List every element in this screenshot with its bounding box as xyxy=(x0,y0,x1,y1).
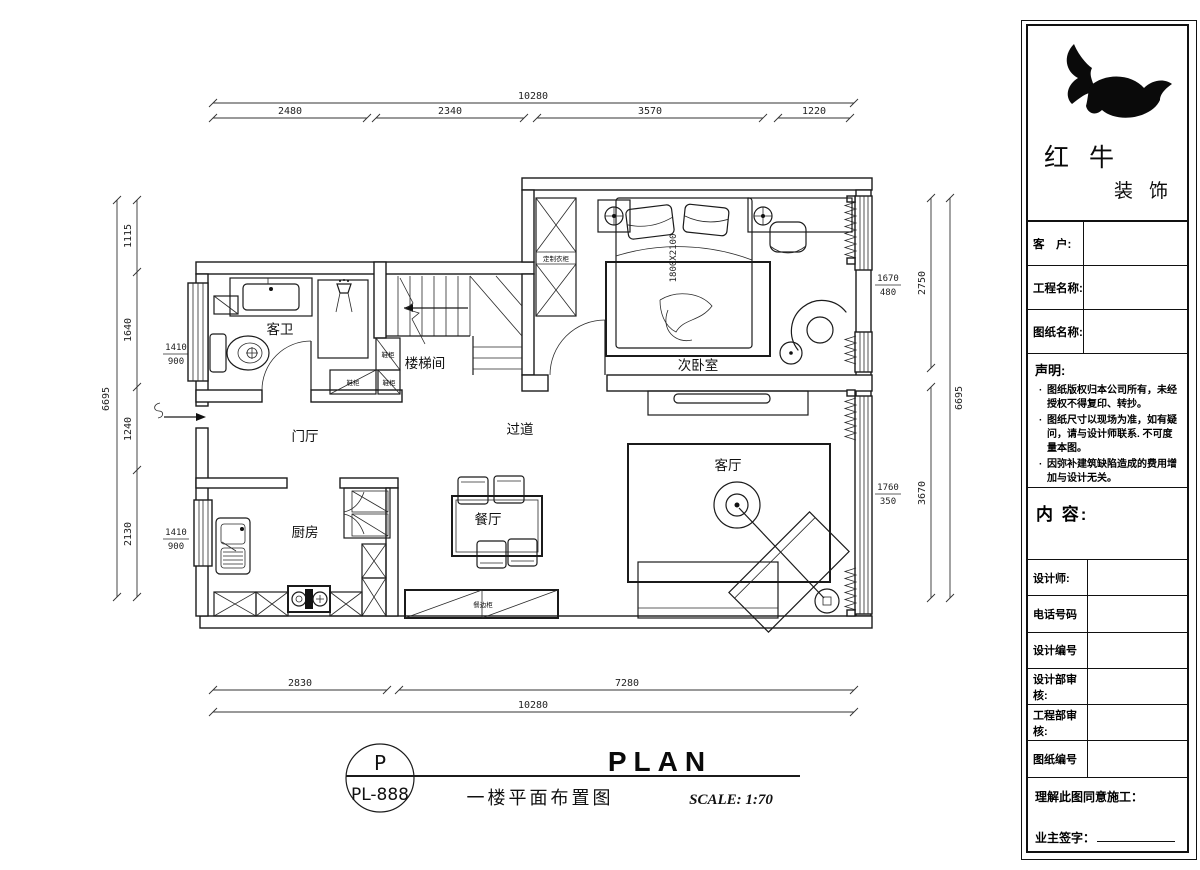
dining-area: 餐厅 餐边柜 xyxy=(405,476,558,618)
dimensions-right: 2750 3670 6695 1670 480 1760 350 xyxy=(875,194,965,602)
dim-left-total: 6695 xyxy=(101,387,112,411)
statement-section: 声明: 图纸版权归本公司所有，未经授权不得复印、转抄。 图纸尺寸以现场为准，如有… xyxy=(1028,354,1187,488)
tall-cabinet xyxy=(362,544,386,616)
plan-code-letter: P xyxy=(374,751,386,775)
brand-name-line1: 红 牛 xyxy=(1044,138,1120,174)
svg-text:350: 350 xyxy=(880,497,896,507)
dim-bottom-total: 10280 xyxy=(518,700,548,711)
footer-signature-label: 业主签字： xyxy=(1035,829,1180,846)
dim-top-seg1: 2480 xyxy=(278,106,302,117)
company-logo-section: 红 牛 装 饰 xyxy=(1028,26,1187,222)
sideboard: 餐边柜 xyxy=(405,590,558,618)
dim-bottom-seg1: 2830 xyxy=(288,678,312,689)
window-label-left-lower: 1410 900 xyxy=(163,528,189,552)
window-label-right-lower: 1760 350 xyxy=(875,483,901,507)
bathroom: 客卫 xyxy=(210,278,368,390)
info-row-drawing-number: 图纸编号 xyxy=(1028,741,1187,777)
shower xyxy=(318,279,368,358)
window-right-middle xyxy=(855,332,872,372)
shoe-cabinet-1: 鞋柜 xyxy=(376,338,400,370)
dim-top-seg3: 3570 xyxy=(638,106,662,117)
dimensions-left: 6695 1115 1640 1240 2130 1410 900 1410 9… xyxy=(101,196,189,601)
statement-item: 图纸版权归本公司所有，未经授权不得复印、转抄。 xyxy=(1039,384,1180,412)
room-label-bedroom: 次卧室 xyxy=(678,357,719,374)
dim-top-seg4: 1220 xyxy=(802,106,826,117)
statement-item: 图纸尺寸以现场为准，如有疑问，请与设计师联系. 不可度量本图。 xyxy=(1039,414,1180,456)
room-label-living: 客厅 xyxy=(715,457,742,474)
armchair xyxy=(780,300,846,364)
dimensions-top: 10280 2480 2340 3570 1220 xyxy=(209,91,858,122)
dim-right-seg2: 3670 xyxy=(917,481,928,505)
field-drawing-name-value xyxy=(1084,310,1187,353)
shoe-cabinets: 鞋柜 鞋柜 鞋柜 xyxy=(330,338,400,394)
svg-text:1670: 1670 xyxy=(877,274,899,284)
field-drawing-name-label: 图纸名称: xyxy=(1028,310,1084,353)
dimensions-bottom: 2830 7280 10280 xyxy=(209,678,858,716)
bedroom: 1800X2100 定制衣柜 xyxy=(536,198,852,375)
info-row-design-review: 设计部审核: xyxy=(1028,669,1187,705)
wardrobe-label: 定制衣柜 xyxy=(543,254,570,263)
window-right-lower xyxy=(855,396,872,614)
kitchen: 厨房 xyxy=(214,488,390,616)
floor-plan-drawing: 10280 2480 2340 3570 1220 2830 7280 1028… xyxy=(0,0,1200,870)
svg-text:鞋柜: 鞋柜 xyxy=(383,378,397,387)
dim-right-total: 6695 xyxy=(954,386,965,410)
dim-left-seg4: 2130 xyxy=(123,522,134,546)
footer-section: 理解此图同意施工： 业主签字： xyxy=(1028,778,1187,851)
kitchen-sink xyxy=(216,518,250,574)
plan-title-en: PLAN xyxy=(608,746,712,777)
plan-title-cn: 一楼平面布置图 xyxy=(467,788,614,809)
plan-code-number: PL-888 xyxy=(351,785,409,805)
svg-text:鞋柜: 鞋柜 xyxy=(382,350,396,359)
svg-text:1410: 1410 xyxy=(165,528,187,538)
dim-left-seg3: 1240 xyxy=(123,417,134,441)
room-label-corridor: 过道 xyxy=(507,422,534,438)
room-label-stairwell: 楼梯间 xyxy=(405,356,446,372)
statement-item: 因弥补建筑缺陷造成的费用增加与设计无关。 xyxy=(1039,458,1180,486)
field-customer: 客 户: xyxy=(1028,222,1187,266)
living-room: 客厅 xyxy=(628,444,849,632)
svg-text:480: 480 xyxy=(880,288,896,298)
svg-text:1760: 1760 xyxy=(877,483,899,493)
svg-text:1410: 1410 xyxy=(165,343,187,353)
floor-lamp xyxy=(714,482,839,613)
footer-agreement-text: 理解此图同意施工： xyxy=(1035,788,1180,805)
room-label-foyer: 门厅 xyxy=(292,429,319,445)
drawing-sheet: 10280 2480 2340 3570 1220 2830 7280 1028… xyxy=(0,0,1200,870)
content-section: 内 容: xyxy=(1028,488,1187,560)
field-project-name-label: 工程名称: xyxy=(1028,266,1084,309)
window-right-upper xyxy=(855,196,872,270)
title-block: 红 牛 装 饰 客 户: 工程名称: 图纸名称: 声明: 图纸版权归本公司所有，… xyxy=(1026,24,1189,853)
desk xyxy=(748,198,852,253)
bull-logo-icon xyxy=(1046,40,1176,140)
corner-cabinet xyxy=(344,488,390,538)
nightstand xyxy=(598,200,630,232)
field-project-name-value xyxy=(1084,266,1187,309)
svg-text:鞋柜: 鞋柜 xyxy=(347,378,361,387)
svg-text:900: 900 xyxy=(168,357,184,367)
wardrobe: 定制衣柜 xyxy=(536,198,576,316)
window-left-lower xyxy=(194,500,212,566)
dim-left-seg2: 1640 xyxy=(123,318,134,342)
field-drawing-name: 图纸名称: xyxy=(1028,310,1187,354)
stove xyxy=(288,586,330,612)
plan-scale: SCALE: 1:70 xyxy=(689,792,773,808)
field-customer-label: 客 户: xyxy=(1028,222,1084,265)
plan-title: P PL-888 PLAN 一楼平面布置图 SCALE: 1:70 xyxy=(346,744,800,812)
tv-console xyxy=(648,391,808,415)
info-row-engineering-review: 工程部审核: xyxy=(1028,705,1187,741)
vanity-sink xyxy=(230,278,312,316)
room-label-bathroom: 客卫 xyxy=(267,321,294,338)
toilet xyxy=(210,334,269,372)
window-label-right-upper: 1670 480 xyxy=(875,274,901,298)
info-row-designer: 设计师: xyxy=(1028,560,1187,596)
field-customer-value xyxy=(1084,222,1187,265)
sofa xyxy=(638,512,849,632)
info-row-phone: 电话号码 xyxy=(1028,596,1187,632)
svg-text:900: 900 xyxy=(168,542,184,552)
room-label-dining: 餐厅 xyxy=(475,512,502,528)
corner-shelf xyxy=(214,296,238,314)
content-label: 内 容: xyxy=(1028,488,1187,525)
dim-right-seg1: 2750 xyxy=(917,271,928,295)
bed-size-label: 1800X2100 xyxy=(669,234,679,283)
info-row-design-number: 设计编号 xyxy=(1028,633,1187,669)
svg-text:餐边柜: 餐边柜 xyxy=(473,600,493,609)
bedroom-door xyxy=(550,320,605,375)
dim-top-total: 10280 xyxy=(518,91,548,102)
staircase: 楼梯间 xyxy=(386,276,522,375)
room-label-kitchen: 厨房 xyxy=(292,525,319,541)
window-label-left-upper: 1410 900 xyxy=(163,343,189,367)
signature-line xyxy=(1097,829,1175,842)
bed: 1800X2100 xyxy=(616,198,752,348)
field-project-name: 工程名称: xyxy=(1028,266,1187,310)
brand-name-line2: 装 饰 xyxy=(1114,176,1173,203)
dim-left-seg1: 1115 xyxy=(123,224,134,248)
foyer: 门厅 xyxy=(155,403,319,445)
bathroom-door xyxy=(262,341,311,390)
window-left-upper xyxy=(188,283,208,381)
statement-title: 声明: xyxy=(1035,360,1180,379)
dim-bottom-seg2: 7280 xyxy=(615,678,639,689)
bedroom-rug xyxy=(606,262,770,356)
dim-top-seg2: 2340 xyxy=(438,106,462,117)
